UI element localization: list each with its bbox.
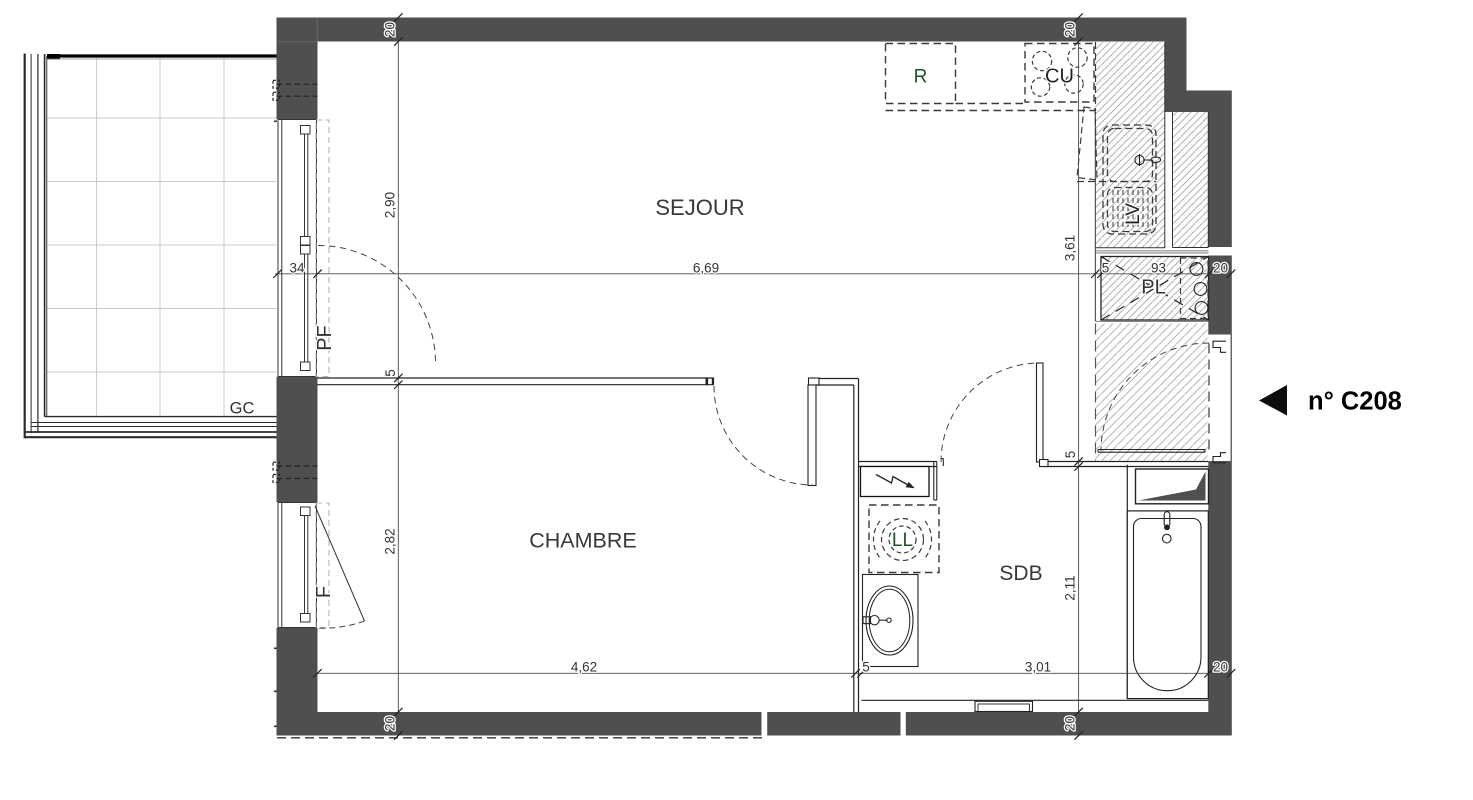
svg-text:20: 20 (382, 716, 397, 731)
svg-text:20: 20 (1213, 260, 1228, 275)
svg-text:5: 5 (1102, 260, 1110, 275)
svg-text:20: 20 (382, 22, 397, 37)
svg-text:4,62: 4,62 (571, 659, 597, 674)
svg-text:R: R (914, 67, 928, 88)
svg-text:GC: GC (230, 400, 255, 418)
svg-text:LL: LL (892, 530, 913, 551)
svg-text:20: 20 (1063, 22, 1078, 37)
svg-text:2,82: 2,82 (382, 528, 397, 554)
svg-text:93: 93 (1151, 260, 1166, 275)
svg-text:CHAMBRE: CHAMBRE (529, 529, 637, 553)
svg-text:SDB: SDB (999, 562, 1042, 585)
svg-text:6,69: 6,69 (693, 260, 719, 275)
svg-text:LV: LV (1123, 203, 1144, 225)
svg-text:SEJOUR: SEJOUR (655, 195, 744, 220)
svg-text:PF: PF (314, 325, 336, 351)
svg-text:2,90: 2,90 (382, 192, 397, 218)
svg-text:34: 34 (289, 260, 305, 275)
svg-text:5: 5 (383, 369, 398, 377)
svg-text:20: 20 (1063, 716, 1078, 731)
svg-text:CU: CU (1045, 66, 1074, 88)
svg-text:3,01: 3,01 (1025, 659, 1051, 674)
svg-text:20: 20 (1213, 659, 1228, 674)
svg-text:2,11: 2,11 (1063, 575, 1078, 600)
svg-text:n° C208: n° C208 (1308, 388, 1402, 416)
svg-text:5: 5 (1063, 451, 1078, 459)
svg-text:PL: PL (1141, 277, 1165, 299)
svg-text:5: 5 (862, 659, 870, 674)
svg-text:F: F (313, 586, 335, 598)
svg-text:3,61: 3,61 (1063, 235, 1078, 261)
